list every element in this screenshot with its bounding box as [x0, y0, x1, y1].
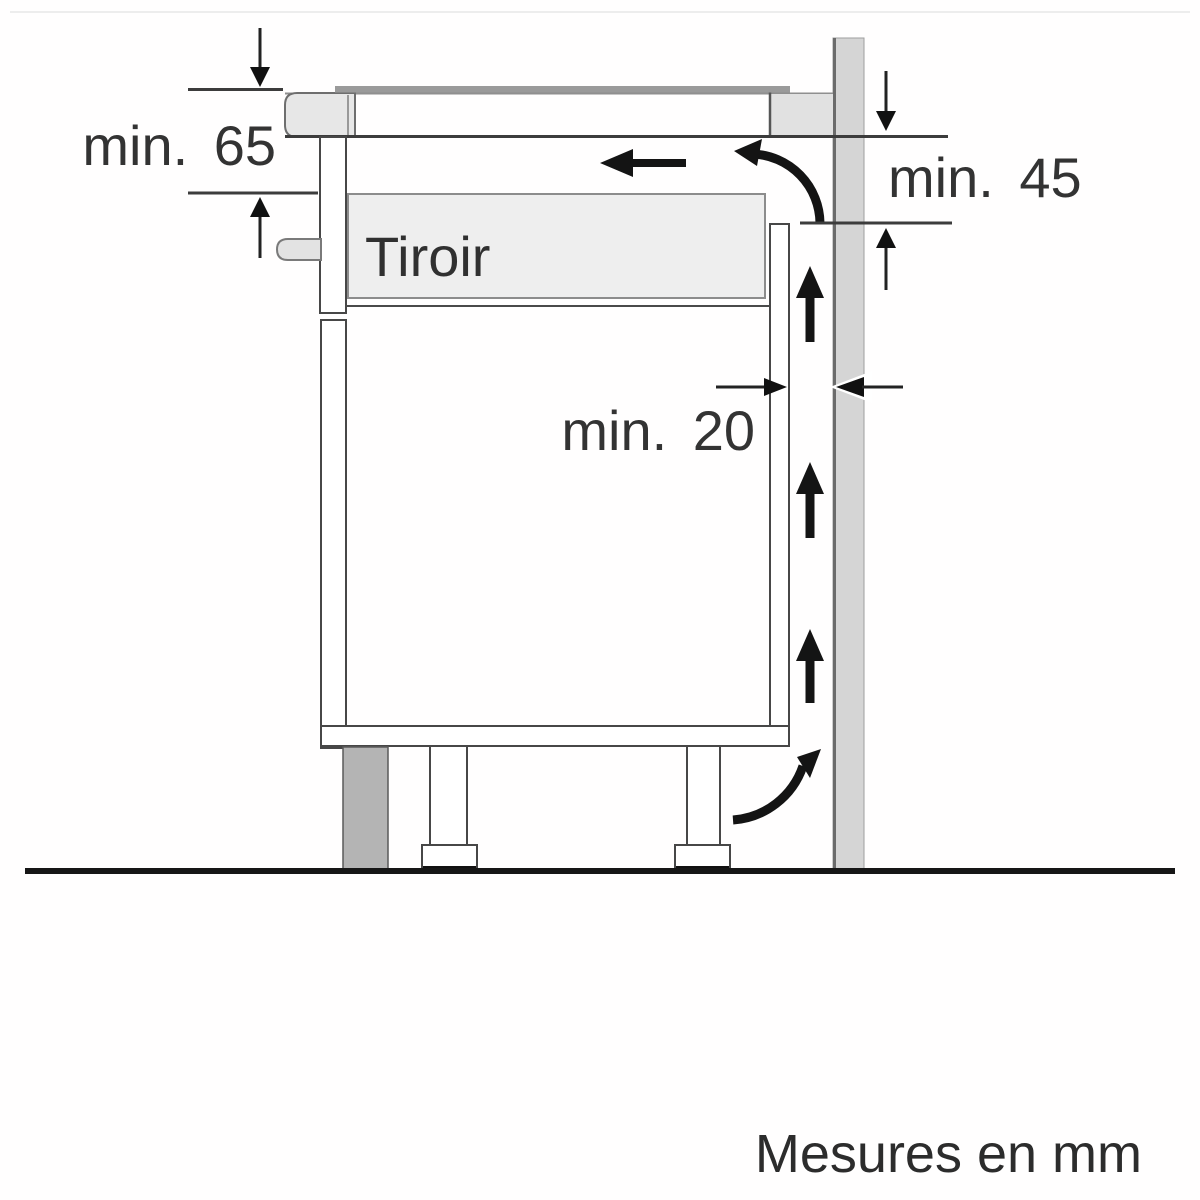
cabinet-rear-panel — [770, 224, 789, 727]
cabinet-leg-left — [422, 746, 477, 872]
hob-glass — [335, 86, 790, 93]
installation-diagram-page: Tiroir — [0, 0, 1200, 1200]
dimension-arrow-icon — [250, 197, 270, 258]
worktop-front-edge — [285, 93, 355, 137]
cabinet-plinth — [343, 747, 388, 869]
wall-body — [833, 38, 864, 871]
leg-column — [687, 746, 720, 845]
leg-foot — [422, 845, 477, 869]
airflow-left-arrow-icon — [600, 149, 686, 177]
drawer-front-panel — [320, 137, 346, 313]
dimension-arrow-icon — [876, 228, 896, 290]
wall — [833, 38, 864, 871]
installation-diagram: Tiroir — [0, 0, 1200, 1200]
leg-column — [430, 746, 467, 845]
cabinet-leg-right — [675, 746, 730, 872]
worktop-rear-section — [770, 94, 833, 136]
airflow-up-arrow-icon — [796, 629, 824, 703]
cabinet: Tiroir — [277, 137, 789, 872]
dimension-arrow-icon — [876, 71, 896, 131]
dim-min45-label: min. 45 — [888, 146, 1082, 209]
dim-min20-label: min. 20 — [561, 399, 755, 462]
dimension-arrow-icon — [250, 28, 270, 87]
leg-foot — [675, 845, 730, 869]
airflow-up-arrow-icon — [796, 462, 824, 538]
drawer-label: Tiroir — [365, 225, 490, 288]
drawer-handle — [277, 239, 321, 260]
dimension-min-65: min. 65 — [82, 28, 318, 258]
airflow-up-arrow-icon — [796, 266, 824, 342]
cabinet-bottom-panel — [321, 726, 789, 746]
cabinet-front-panel — [321, 320, 346, 748]
units-caption: Mesures en mm — [755, 1124, 1142, 1184]
dim-min65-label: min. 65 — [82, 114, 276, 177]
airflow-curve-bottom-icon — [733, 749, 821, 820]
